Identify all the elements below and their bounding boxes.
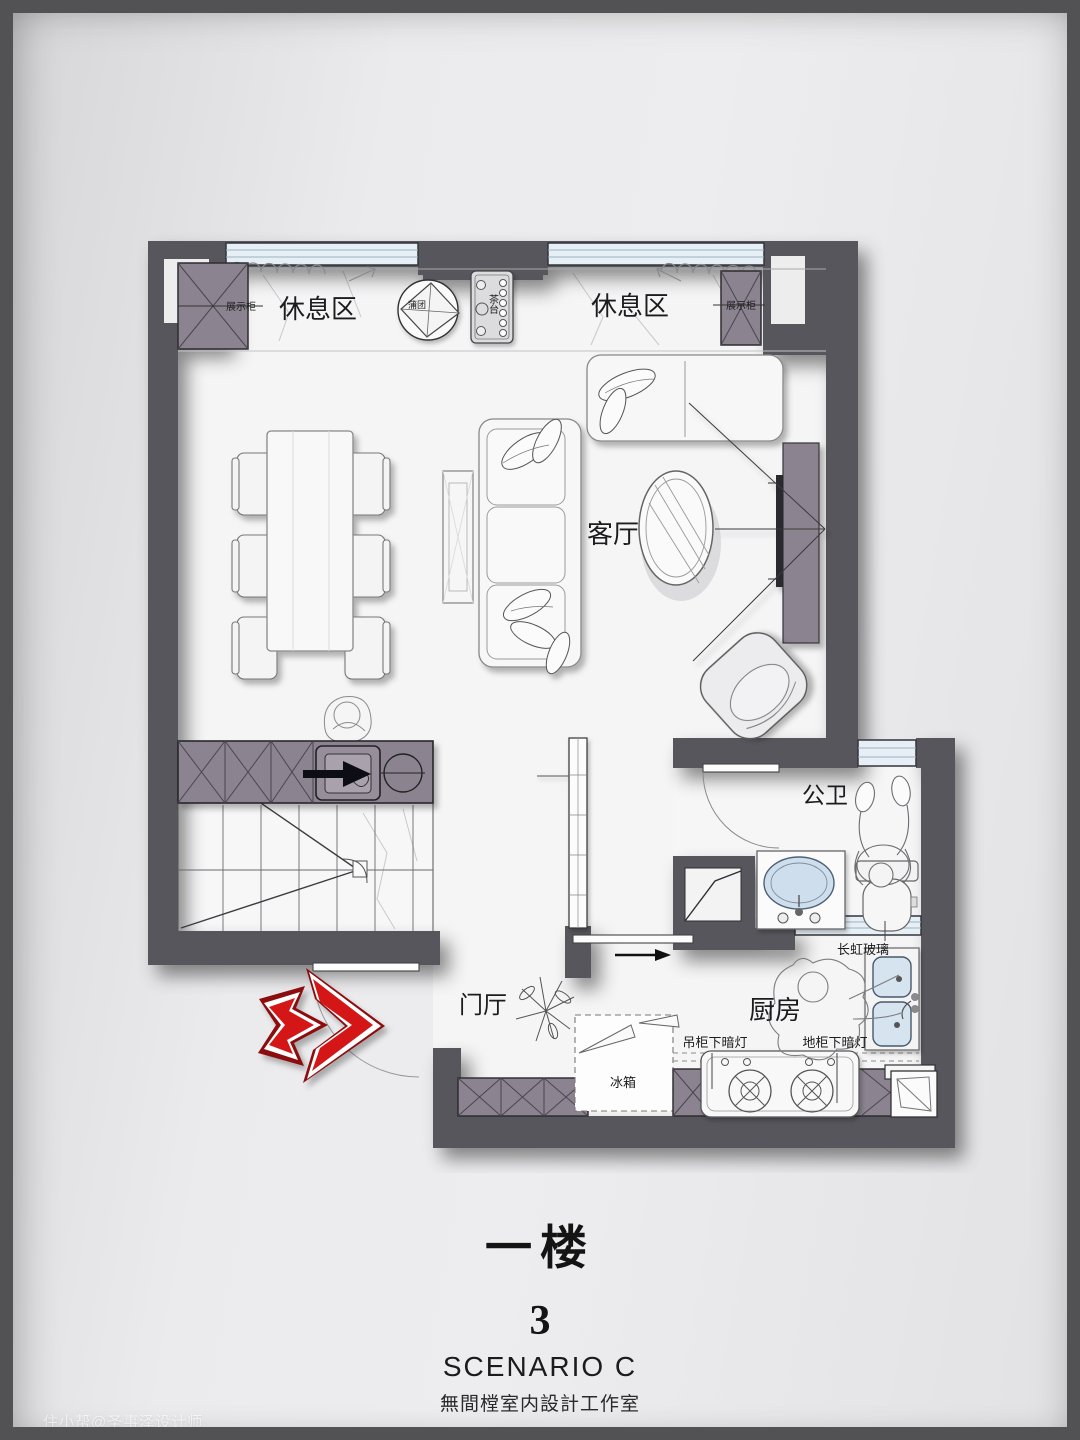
watermark: 住小帮@圣事泽设计师: [43, 1411, 203, 1432]
poster-canvas: 展示柜 展示柜 蒲团 茶台: [0, 0, 1080, 1440]
top-sofa: [587, 355, 783, 441]
meditation-cushion-label: 蒲团: [408, 299, 426, 310]
tea-table-label: 茶台: [487, 293, 499, 315]
wall-cabinet-light-label: 吊柜下暗灯: [682, 1035, 747, 1050]
duct-shaft: [685, 868, 741, 921]
living-room-label: 客厅: [587, 519, 639, 549]
base-cabinet-light-label: 地柜下暗灯: [802, 1035, 867, 1050]
kitchen-label: 厨房: [749, 995, 801, 1025]
tea-table: 茶台: [471, 271, 513, 343]
display-cabinet-right-label: 展示柜: [726, 299, 756, 312]
fridge: 冰箱: [575, 1015, 679, 1111]
reeded-glass-label: 长虹玻璃: [837, 942, 889, 957]
dining-set: [232, 431, 390, 679]
dining-table: [267, 431, 353, 651]
console-table: [443, 471, 473, 603]
floor-plan: 展示柜 展示柜 蒲团 茶台: [13, 13, 1080, 1173]
top-window-left: [226, 243, 418, 265]
foyer-label: 门厅: [459, 992, 507, 1019]
display-cabinet-left-label: 展示柜: [226, 300, 256, 313]
stove: [701, 1051, 859, 1117]
page-number: 3: [13, 1297, 1067, 1345]
display-cabinet-right: 展示柜: [713, 271, 765, 345]
rest-area-right-label: 休息区: [591, 291, 669, 321]
vanity: [757, 851, 845, 929]
shoe-cabinet: [458, 1078, 588, 1116]
floor-title: 一楼: [13, 1209, 1067, 1278]
kitchen-appliance: [885, 1065, 937, 1117]
tv-screen: [776, 475, 783, 587]
main-sofa: [479, 415, 581, 677]
scenario-label: SCENARIO C: [13, 1351, 1067, 1383]
floors: [178, 265, 921, 1116]
meditation-cushion: 蒲团: [398, 280, 459, 340]
entry-arrow: [258, 968, 385, 1083]
top-window-right: [548, 243, 764, 265]
bathroom-window: [858, 740, 916, 766]
stair-counter: [178, 741, 433, 803]
fridge-label: 冰箱: [610, 1075, 636, 1090]
rest-area-left-label: 休息区: [279, 294, 357, 324]
kitchen-sink: [865, 948, 919, 1050]
bathroom-label: 公卫: [802, 782, 848, 808]
